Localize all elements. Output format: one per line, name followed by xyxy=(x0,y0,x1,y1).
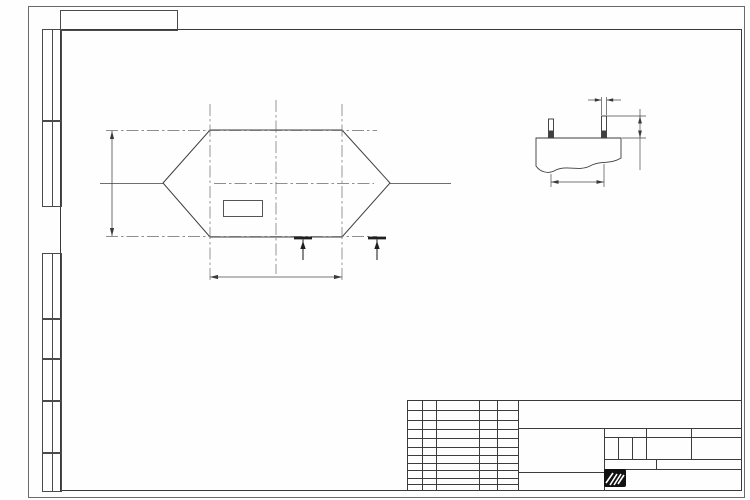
stamp-title-line3 xyxy=(518,457,604,471)
stamp-sheets-label xyxy=(660,459,700,469)
stamp-col-podp xyxy=(479,438,497,447)
stamp-scale-value xyxy=(691,437,742,459)
stamp-row-utv xyxy=(410,484,440,491)
stamp-title-line2 xyxy=(518,443,604,457)
bolt-thread-right xyxy=(602,131,606,138)
stamp-row-razrab xyxy=(410,447,440,455)
section-dimension-arrows xyxy=(551,98,642,184)
stamp-mass-value xyxy=(646,437,691,459)
manufacturer-logo xyxy=(604,469,742,491)
stamp-mass-header xyxy=(646,428,691,437)
stamp-product-line1 xyxy=(518,473,604,482)
stamp-doc-number xyxy=(518,401,742,428)
concrete-block-outline xyxy=(536,138,621,172)
stamp-title-line1 xyxy=(518,429,604,443)
stamp-row-prov xyxy=(410,455,440,463)
section-linework xyxy=(536,97,646,187)
stamp-lit-header xyxy=(604,428,646,437)
bolt-thread-left xyxy=(549,131,553,138)
section-dimension-lines xyxy=(551,97,646,187)
section-cut-marks xyxy=(294,238,386,260)
drawing-sheet xyxy=(0,0,750,500)
stamp-row-tkontr xyxy=(410,463,440,471)
stamp-col-ndocum xyxy=(436,438,479,447)
stamp-lit-value xyxy=(604,437,618,459)
stamp-col-data xyxy=(497,438,518,447)
stamp-sheets-value xyxy=(708,459,728,469)
plan-axes xyxy=(106,100,377,281)
stamp-col-izm xyxy=(408,438,422,447)
stamp-col-list xyxy=(422,438,436,447)
kvzr-logo-icon xyxy=(604,469,626,487)
level-mark xyxy=(223,200,263,217)
title-block xyxy=(407,400,742,491)
stamp-sheet-label xyxy=(604,459,656,469)
stamp-scale-header xyxy=(691,428,742,437)
stamp-product-line2 xyxy=(518,482,604,491)
